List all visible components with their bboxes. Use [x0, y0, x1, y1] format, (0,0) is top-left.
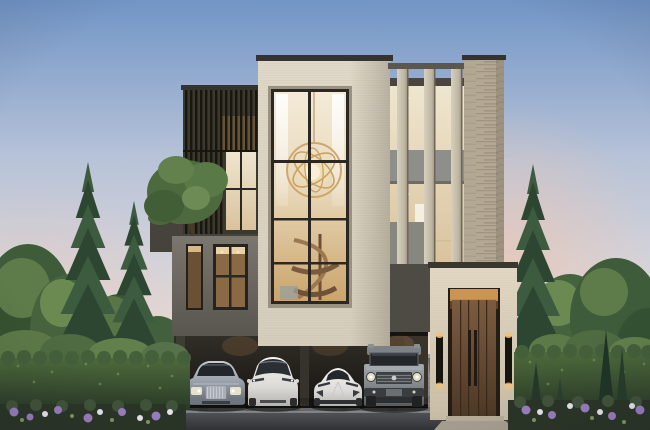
- architectural-rendering: [0, 0, 650, 430]
- vignette: [0, 0, 650, 430]
